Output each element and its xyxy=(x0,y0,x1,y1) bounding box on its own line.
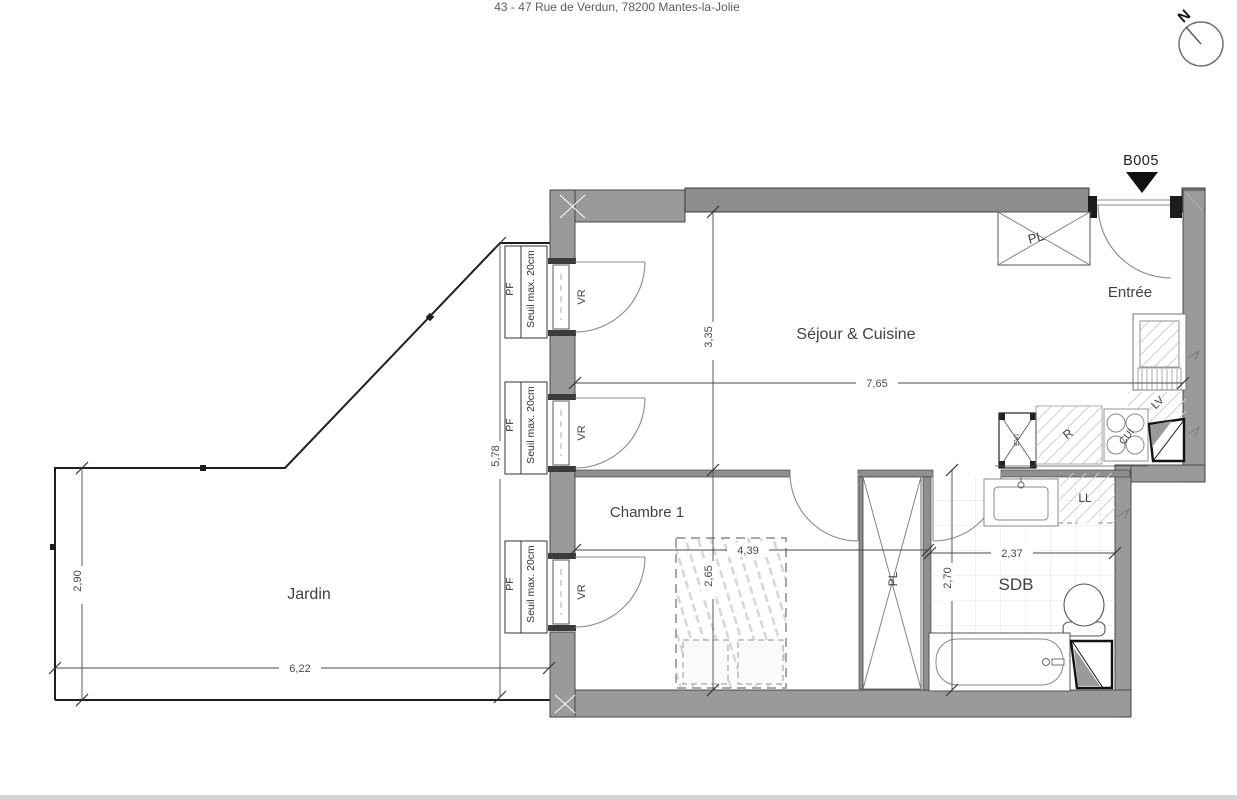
bed xyxy=(676,538,786,688)
bathroom-corner-fixture xyxy=(1071,641,1112,688)
dim-label: 7,65 xyxy=(866,378,887,390)
seuil-label: Seuil max. 20cm xyxy=(525,250,537,328)
unit-marker-triangle-icon xyxy=(1126,172,1158,193)
seuil-label: Seuil max. 20cm xyxy=(525,545,537,623)
dimension-jardin-width: 6,22 xyxy=(49,661,555,675)
closet-chambre: PL xyxy=(863,477,921,689)
dimension-sejour-width: 7,65 xyxy=(569,376,1189,390)
unit-marker: B005 xyxy=(1123,153,1159,193)
window-note-box-2: PF Seuil max. 20cm xyxy=(504,382,547,474)
kitchen-corner-fixture xyxy=(1149,419,1184,461)
pf-label: PF xyxy=(504,418,516,431)
pf-label: PF xyxy=(504,577,516,590)
dim-label: 2,70 xyxy=(942,567,954,588)
closet-entree: PL xyxy=(998,212,1090,265)
toilet xyxy=(1063,584,1105,636)
dim-label: 2,90 xyxy=(72,570,84,591)
dim-label: 3,35 xyxy=(703,326,715,347)
window-note-box-1: PF Seuil max. 20cm xyxy=(504,246,547,338)
seuil-label: Seuil max. 20cm xyxy=(525,386,537,464)
room-label-jardin: Jardin xyxy=(287,586,331,603)
compass: N xyxy=(1175,6,1223,66)
floor-plan-page: 43 - 47 Rue de Verdun, 78200 Mantes-la-J… xyxy=(0,0,1237,800)
bathtub xyxy=(929,633,1070,691)
chambre-door xyxy=(790,473,858,541)
room-label-chambre: Chambre 1 xyxy=(610,504,684,521)
pf-label: PF xyxy=(504,282,516,295)
hob: CUI xyxy=(1104,409,1148,461)
dimension-jardin-depth: 2,90 xyxy=(70,462,88,706)
dim-label: 2,65 xyxy=(703,565,715,586)
dimension-facade: 5,78 xyxy=(488,237,506,703)
vr-label: VR xyxy=(576,289,588,304)
entrance-door xyxy=(1088,196,1182,278)
dim-label: 6,22 xyxy=(289,663,310,675)
window-note-box-3: PF Seuil max. 20cm xyxy=(504,541,547,633)
vr-label: VR xyxy=(576,584,588,599)
compass-north-label: N xyxy=(1175,6,1194,26)
sink-unit: EVI xyxy=(999,413,1036,468)
pillow xyxy=(683,640,728,684)
washing-machine: LL xyxy=(1058,473,1115,523)
evi-label: EVI xyxy=(1012,434,1021,446)
dim-label: 2,37 xyxy=(1001,548,1022,560)
dim-label: 4,39 xyxy=(737,545,758,557)
room-label-sejour: Séjour & Cuisine xyxy=(796,326,915,343)
address-text: 43 - 47 Rue de Verdun, 78200 Mantes-la-J… xyxy=(494,0,740,14)
window-sejour: VR xyxy=(548,258,645,336)
compass-needle-icon xyxy=(1186,27,1201,44)
window-chambre: VR xyxy=(548,553,645,631)
kitchen: LV EVI R CUI xyxy=(995,314,1186,468)
pl-label: PL xyxy=(886,571,900,586)
window-cuisine: VR xyxy=(548,394,645,472)
ll-label: LL xyxy=(1078,491,1092,505)
dim-label: 5,78 xyxy=(490,445,502,466)
washbasin xyxy=(984,477,1058,526)
room-label-sdb: SDB xyxy=(999,575,1034,594)
jardin-boundary xyxy=(50,243,552,700)
pillow xyxy=(738,640,783,684)
unit-id-label: B005 xyxy=(1123,153,1159,169)
dimension-sejour-depth: 3,35 xyxy=(701,206,719,476)
room-label-entree: Entrée xyxy=(1108,284,1152,301)
vr-label: VR xyxy=(576,425,588,440)
floor-plan-drawing: 43 - 47 Rue de Verdun, 78200 Mantes-la-J… xyxy=(0,0,1237,800)
page-bottom-edge xyxy=(0,795,1237,800)
